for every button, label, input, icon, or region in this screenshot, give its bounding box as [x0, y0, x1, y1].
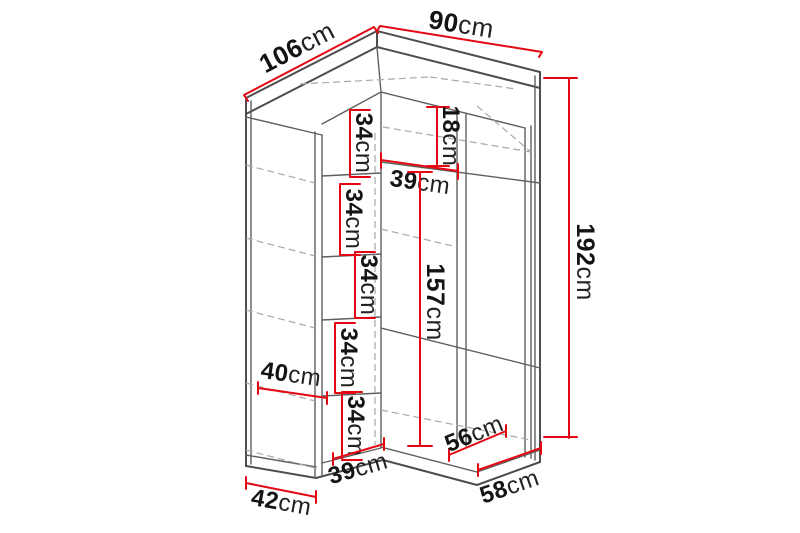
dimension-90cm-top-right: 90cm — [377, 4, 542, 57]
wardrobe-dimension-diagram: 106cm 90cm 192cm 18cm 39cm 34cm 34cm — [0, 0, 800, 533]
right-mid-rail — [381, 328, 540, 368]
dim-label-90cm: 90cm — [427, 4, 496, 44]
dim-label-157cm: 157cm — [421, 263, 449, 341]
dim-label-42cm: 42cm — [249, 484, 313, 521]
dim-label-34cm-5: 34cm — [342, 396, 369, 457]
dimension-34cm-shelf-1: 34cm — [350, 110, 377, 177]
dim-label-106cm: 106cm — [254, 15, 339, 79]
carcass-top-edge-left — [246, 117, 322, 135]
dimension-34cm-shelf-2: 34cm — [340, 184, 367, 255]
dimension-157cm-tall-section: 157cm — [408, 172, 449, 446]
dimension-34cm-shelf-3: 34cm — [355, 252, 382, 318]
left-shelf-1 — [322, 173, 381, 176]
hidden-shelf-2 — [246, 238, 315, 256]
hidden-edges — [246, 77, 531, 468]
dimension-40cm-left-depth: 40cm — [258, 357, 327, 404]
dim-label-192cm: 192cm — [571, 223, 599, 301]
hidden-back-top-b — [477, 106, 531, 152]
dim-label-34cm-4: 34cm — [335, 328, 362, 389]
dim-label-58cm: 58cm — [476, 464, 542, 509]
hidden-shelf-5 — [246, 450, 315, 468]
hidden-top-face-a — [300, 77, 430, 84]
hidden-shelf-3 — [246, 310, 315, 328]
dim-label-39cm-bottom: 39cm — [325, 447, 391, 490]
dim-label-56cm: 56cm — [441, 410, 507, 458]
hidden-shelf-1 — [246, 165, 315, 183]
dimension-42cm-left-outer: 42cm — [246, 477, 316, 521]
dimension-18cm-top-cubby: 18cm — [427, 106, 464, 167]
dimension-56cm-right-inner: 56cm — [441, 410, 507, 461]
dimension-lines: 106cm 90cm 192cm 18cm 39cm 34cm 34cm — [244, 4, 599, 521]
dimension-192cm-height: 192cm — [544, 78, 599, 438]
dim-label-18cm: 18cm — [437, 106, 464, 167]
dim-label-34cm-3: 34cm — [355, 255, 382, 316]
diagram-canvas: 106cm 90cm 192cm 18cm 39cm 34cm 34cm — [0, 0, 800, 533]
dimension-34cm-shelf-4: 34cm — [335, 323, 362, 393]
dim-label-34cm-2: 34cm — [340, 189, 367, 250]
dim-label-40cm: 40cm — [259, 357, 323, 392]
dim-label-34cm-1: 34cm — [350, 113, 377, 174]
top-slab-rim-right — [377, 47, 540, 88]
apex-inner-edge — [377, 47, 381, 92]
